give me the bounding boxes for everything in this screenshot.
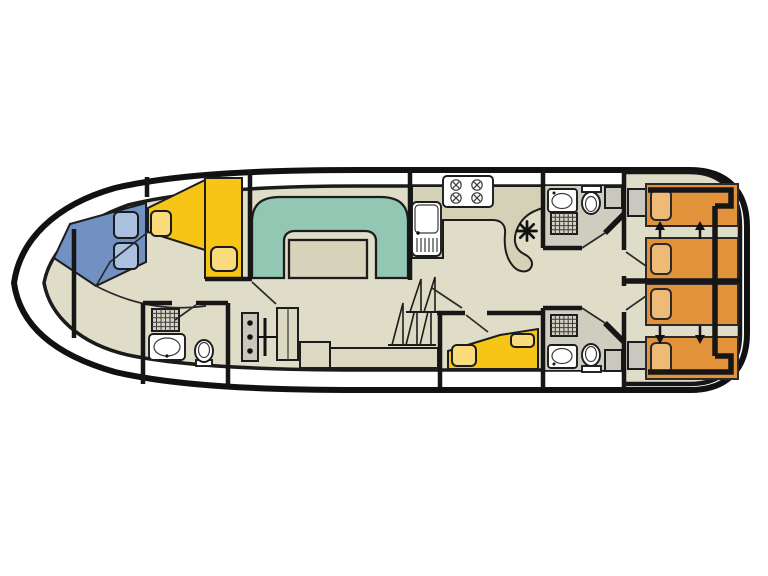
shower-bottom (551, 315, 577, 336)
saloon-table (289, 240, 367, 278)
washbasin-top (548, 189, 577, 212)
washbasin-bow (149, 334, 185, 360)
aft-pillow-3 (651, 289, 671, 319)
mid-bed-pillow-1 (452, 345, 476, 366)
boat-floor-plan (0, 0, 768, 576)
aft-pillow-2 (651, 244, 671, 274)
locker-top (605, 187, 622, 208)
aft-locker-bottom (628, 342, 647, 369)
toilet-bow (195, 340, 213, 366)
yellow-pillow-bow (151, 211, 171, 236)
aft-pillow-4 (651, 343, 671, 373)
mid-bed-pillow-2 (511, 334, 534, 347)
galley-sink (412, 202, 441, 256)
shower-bow (152, 309, 179, 331)
toilet-top (582, 186, 601, 214)
heater-symbol (518, 222, 537, 241)
bench-long (330, 348, 438, 368)
bench-return (300, 342, 330, 368)
locker-bottom (605, 350, 622, 371)
aft-pillow-1 (651, 190, 671, 220)
toilet-bottom (582, 344, 601, 372)
shower-top (551, 213, 577, 234)
blue-pillow-1 (114, 212, 138, 238)
aft-locker-top (628, 189, 647, 216)
washbasin-bottom (548, 345, 577, 368)
yellow-pillow-wardrobe (211, 247, 237, 271)
stove (443, 176, 493, 207)
